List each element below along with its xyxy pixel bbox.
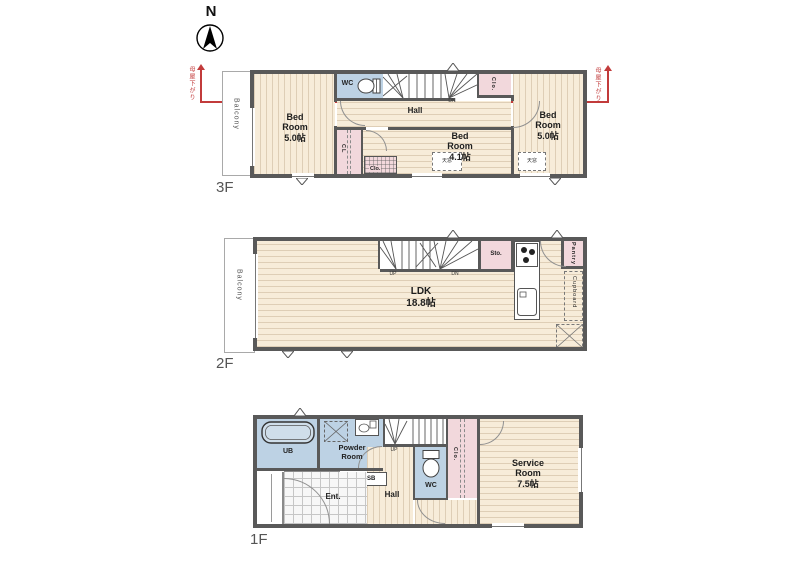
floor-tag-1f: 1F (250, 531, 268, 548)
wc-1f-label: WC (421, 482, 441, 490)
stairs-dn-2f-label: DN (448, 272, 462, 277)
stairs-dn-3f-label: DN (445, 99, 459, 104)
wall (253, 347, 587, 351)
shoe-box-label: SB (367, 476, 375, 483)
closet-small-3f: Clo. (364, 156, 397, 174)
ldk-label: LDK 18.8帖 (390, 286, 452, 309)
wall (511, 241, 514, 272)
wall (317, 419, 320, 468)
wall (477, 95, 513, 98)
staircase-3f (383, 74, 479, 98)
wall (583, 237, 587, 351)
vent-mark-icon (551, 230, 563, 238)
stairwell-1f (385, 419, 446, 444)
service-room-label: Service Room 7.5帖 (492, 458, 564, 489)
hall-3f-label: Hall (398, 106, 432, 115)
vanity-sink-icon (355, 419, 379, 436)
wall (253, 415, 257, 528)
stairs-up-2f-label: UP (386, 272, 400, 277)
stairs-up-1f-label: UP (387, 448, 401, 453)
staircase-1f (385, 419, 446, 444)
bathtub-icon (261, 421, 315, 444)
balcony-3f-label: Balcony (232, 98, 240, 130)
pantry-2f-label: Pantry (570, 242, 576, 265)
floor-tag-3f: 3F (216, 179, 234, 196)
wall (334, 126, 337, 174)
staircase-2f (380, 241, 478, 269)
floor-tag-2f: 2F (216, 355, 234, 372)
skylight-right-label: 天窓 (519, 159, 545, 164)
bedroom-right-3f-label: Bed Room 5.0帖 (513, 110, 583, 141)
wall (361, 130, 363, 174)
wall (477, 74, 479, 95)
closet-top-3f-label: Clo. (490, 77, 496, 91)
vent-mark-icon (447, 230, 459, 238)
washer-space-box (324, 421, 348, 442)
cupboard-2f-label: Cupboard (571, 276, 577, 308)
powder-room-label: Powder Room (322, 443, 382, 461)
closet-1f-rail (460, 419, 465, 498)
vent-mark-icon (296, 178, 308, 185)
kitchen-sink-icon (517, 288, 537, 316)
window (578, 448, 584, 492)
toilet-icon (357, 77, 381, 95)
skylight-box-right: 天窓 (518, 152, 546, 171)
closet-cl-3f-label: CL (340, 144, 346, 153)
floor-plan-canvas: N 母屋下がり 母屋下がり Balcony Clo. (0, 0, 800, 565)
wall (257, 468, 383, 471)
storage-2f: Sto. (481, 241, 511, 269)
compass-north-label: N (202, 3, 220, 21)
wall (378, 241, 380, 269)
closet-cl-3f-rail (347, 130, 351, 174)
balcony-3f: Balcony (222, 71, 252, 176)
slope-label-left: 母屋下がり (188, 66, 194, 106)
bath-label: UB (275, 448, 301, 456)
closet-1f-label: Clo. (452, 447, 458, 461)
fridge-space-box (556, 324, 583, 348)
compass-rose-icon (195, 22, 225, 54)
bedroom-mid-3f-label: Bed Room 4.1帖 (425, 131, 495, 162)
window (520, 173, 550, 179)
closet-cl-3f: CL (337, 130, 361, 174)
balcony-2f-label: Balcony (235, 269, 243, 301)
hall-1f-label: Hall (378, 490, 406, 499)
closet-small-3f-label: Clo. (369, 166, 381, 172)
window (252, 254, 258, 338)
cupboard-2f: Cupboard (564, 271, 583, 321)
wall (253, 524, 583, 528)
slope-label-right: 母屋下がり (594, 67, 600, 107)
vent-mark-icon (294, 408, 306, 416)
stairwell-2f (380, 241, 478, 269)
stairwell-3f (383, 74, 479, 98)
window (492, 523, 524, 529)
slope-arrow-right (607, 71, 609, 103)
slope-arrowhead-right-icon (604, 65, 612, 71)
wc-3f-label: WC (339, 80, 356, 88)
pantry-2f: Pantry (564, 241, 583, 266)
entrance-label: Ent. (318, 492, 348, 501)
wall (383, 419, 385, 447)
vent-mark-icon (282, 351, 294, 358)
vent-mark-icon (447, 63, 459, 71)
wall (253, 237, 587, 241)
slope-arrow-left (200, 70, 202, 103)
wall (413, 447, 415, 498)
vent-mark-icon (341, 351, 353, 358)
closet-1f: Clo. (448, 419, 477, 498)
window (249, 108, 255, 166)
wall (388, 127, 511, 130)
wall (250, 70, 587, 74)
window (412, 173, 442, 179)
vent-mark-icon (549, 178, 561, 185)
toilet-icon (420, 450, 442, 478)
slope-arrowhead-left-icon (197, 64, 205, 70)
porch-step-line (271, 474, 272, 522)
storage-2f-label: Sto. (481, 251, 511, 258)
stove-icon (516, 243, 538, 267)
wall (583, 70, 587, 178)
balcony-2f: Balcony (224, 238, 255, 353)
wall (478, 241, 481, 269)
closet-top-3f: Clo. (479, 74, 511, 95)
wall (446, 419, 448, 500)
bedroom-left-3f-label: Bed Room 5.0帖 (260, 112, 330, 143)
